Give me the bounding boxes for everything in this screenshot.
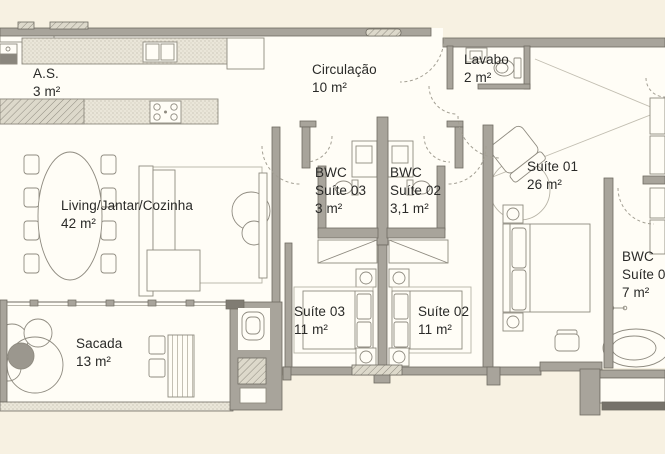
room-name: A.S.	[33, 65, 60, 83]
room-label-bwc-suite02: BWC Suíte 02 3,1 m²	[390, 164, 441, 218]
room-label-living: Living/Jantar/Cozinha 42 m²	[61, 197, 193, 233]
room-label-suite01: Suíte 01 26 m²	[527, 158, 578, 194]
room-name: Suíte 03	[315, 182, 366, 200]
room-name: Sacada	[76, 335, 122, 353]
room-area: 3,1 m²	[390, 200, 441, 218]
room-name: Living/Jantar/Cozinha	[61, 197, 193, 215]
room-name: Suíte 02	[418, 303, 469, 321]
room-label-suite02: Suíte 02 11 m²	[418, 303, 469, 339]
room-label-bwc-suite01: BWC Suíte 01 7 m²	[622, 248, 665, 302]
room-label-as: A.S. 3 m²	[33, 65, 60, 101]
room-label-circulacao: Circulação 10 m²	[312, 61, 377, 97]
room-labels: A.S. 3 m² Living/Jantar/Cozinha 42 m² Ci…	[0, 0, 665, 454]
room-name: Suíte 03	[294, 303, 345, 321]
room-area: 7 m²	[622, 284, 665, 302]
room-name: Suíte 01	[527, 158, 578, 176]
room-area: 26 m²	[527, 176, 578, 194]
room-name: BWC	[315, 164, 366, 182]
room-name: Suíte 02	[390, 182, 441, 200]
room-area: 13 m²	[76, 353, 122, 371]
room-area: 3 m²	[315, 200, 366, 218]
room-name: Circulação	[312, 61, 377, 79]
room-area: 10 m²	[312, 79, 377, 97]
room-area: 3 m²	[33, 83, 60, 101]
room-area: 2 m²	[464, 69, 509, 87]
room-area: 11 m²	[418, 321, 469, 339]
room-label-bwc-suite03: BWC Suíte 03 3 m²	[315, 164, 366, 218]
floor-plan: A.S. 3 m² Living/Jantar/Cozinha 42 m² Ci…	[0, 0, 665, 454]
room-name: Lavabo	[464, 51, 509, 69]
room-label-suite03: Suíte 03 11 m²	[294, 303, 345, 339]
room-label-lavabo: Lavabo 2 m²	[464, 51, 509, 87]
room-name: BWC	[390, 164, 441, 182]
room-name: BWC	[622, 248, 665, 266]
room-label-sacada: Sacada 13 m²	[76, 335, 122, 371]
room-name: Suíte 01	[622, 266, 665, 284]
room-area: 42 m²	[61, 215, 193, 233]
room-area: 11 m²	[294, 321, 345, 339]
